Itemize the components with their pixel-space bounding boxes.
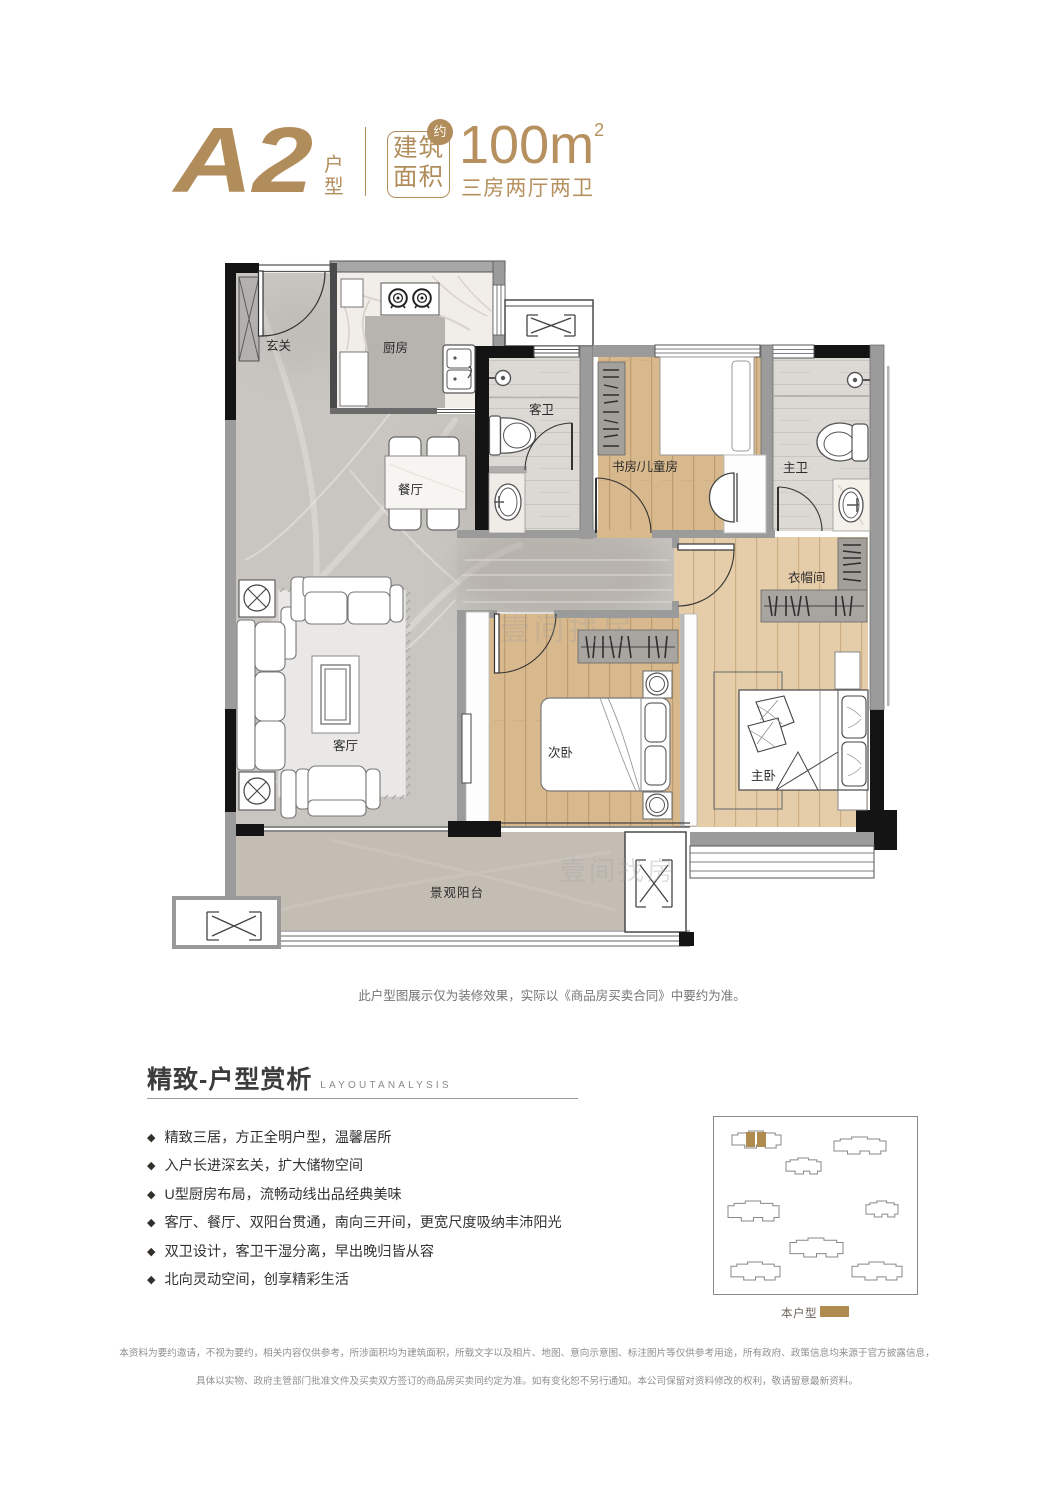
svg-text:主卧: 主卧: [751, 769, 776, 783]
svg-text:次卧: 次卧: [548, 746, 573, 760]
svg-text:客卫: 客卫: [529, 402, 554, 417]
svg-text:景观阳台: 景观阳台: [430, 885, 484, 900]
svg-text:客厅: 客厅: [333, 738, 358, 753]
svg-text:餐厅: 餐厅: [398, 482, 423, 497]
svg-text:壹间找房: 壹间找房: [500, 614, 636, 647]
svg-text:壹间找房: 壹间找房: [560, 856, 676, 886]
svg-text:主卫: 主卫: [783, 461, 808, 475]
svg-text:衣帽间: 衣帽间: [788, 570, 826, 585]
svg-text:玄关: 玄关: [266, 338, 291, 353]
svg-text:厨房: 厨房: [383, 340, 408, 355]
svg-text:书房/儿童房: 书房/儿童房: [612, 459, 678, 474]
